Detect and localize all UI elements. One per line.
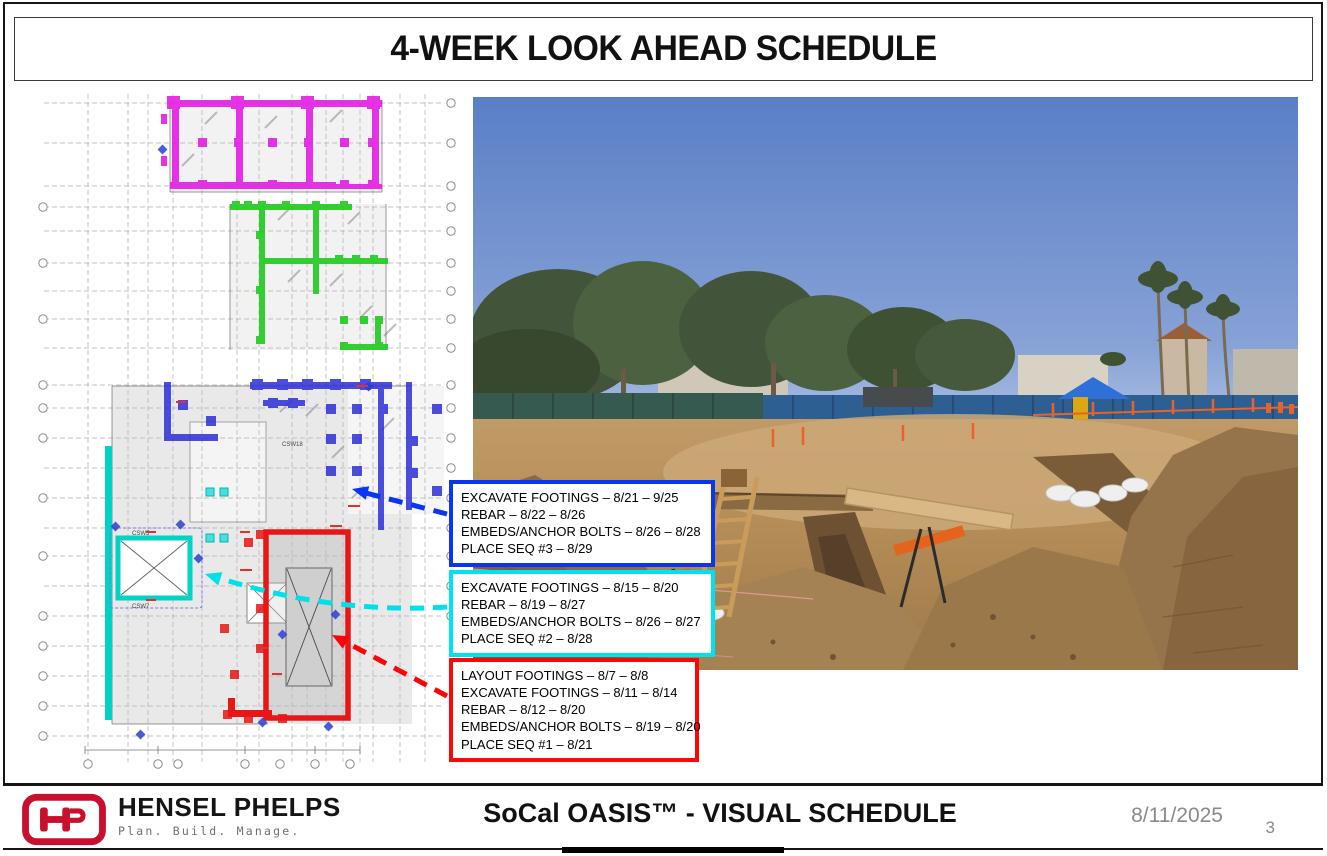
company-tagline: Plan. Build. Manage. [118, 824, 341, 838]
slide: 4-WEEK LOOK AHEAD SCHEDULE [0, 0, 1327, 856]
callout-line: PLACE SEQ #1 – 8/21 [461, 736, 687, 753]
callout-line: EXCAVATE FOOTINGS – 8/15 – 8/20 [461, 579, 703, 596]
wood-box-2 [721, 469, 747, 487]
company-block: HENSEL PHELPS Plan. Build. Manage. [118, 792, 341, 838]
callout-line: PLACE SEQ #3 – 8/29 [461, 540, 703, 557]
floor-plan-container: CSW5 CSW7 CSW18 [30, 86, 460, 792]
dimension-line [85, 746, 360, 754]
callout-line: REBAR – 8/12 – 8/20 [461, 701, 687, 718]
yellow-barrel [1073, 397, 1088, 419]
callout-sequence-1: LAYOUT FOOTINGS – 8/7 – 8/8 EXCAVATE FOO… [449, 658, 699, 762]
page-title: 4-WEEK LOOK AHEAD SCHEDULE [390, 29, 936, 69]
callout-sequence-2: EXCAVATE FOOTINGS – 8/15 – 8/20 REBAR – … [449, 570, 715, 657]
core-label-bottom: CSW7 [132, 604, 150, 610]
company-name: HENSEL PHELPS [118, 792, 341, 823]
page-number: 3 [1266, 818, 1275, 838]
bottom-accent-bar [562, 847, 784, 853]
hensel-phelps-logo-icon [21, 793, 107, 846]
callout-line: EXCAVATE FOOTINGS – 8/21 – 9/25 [461, 489, 703, 506]
title-bar: 4-WEEK LOOK AHEAD SCHEDULE [14, 17, 1313, 81]
slide-date: 8/11/2025 [1131, 804, 1223, 828]
callout-line: PLACE SEQ #2 – 8/28 [461, 630, 703, 647]
callout-line: EXCAVATE FOOTINGS – 8/11 – 8/14 [461, 684, 687, 701]
callout-sequence-3: EXCAVATE FOOTINGS – 8/21 – 9/25 REBAR – … [449, 480, 715, 567]
callout-line: EMBEDS/ANCHOR BOLTS – 8/19 – 8/20 [461, 718, 687, 735]
project-title: SoCal OASIS™ - VISUAL SCHEDULE [483, 798, 957, 829]
wall-label: CSW18 [282, 442, 303, 448]
callout-line: LAYOUT FOOTINGS – 8/7 – 8/8 [461, 667, 687, 684]
footer: HENSEL PHELPS Plan. Build. Manage. SoCal… [0, 786, 1327, 848]
callout-line: REBAR – 8/19 – 8/27 [461, 596, 703, 613]
callout-line: EMBEDS/ANCHOR BOLTS – 8/26 – 8/27 [461, 613, 703, 630]
callout-line: EMBEDS/ANCHOR BOLTS – 8/26 – 8/28 [461, 523, 703, 540]
callout-line: REBAR – 8/22 – 8/26 [461, 506, 703, 523]
floor-plan-drawing: CSW5 CSW7 CSW18 [30, 86, 460, 792]
